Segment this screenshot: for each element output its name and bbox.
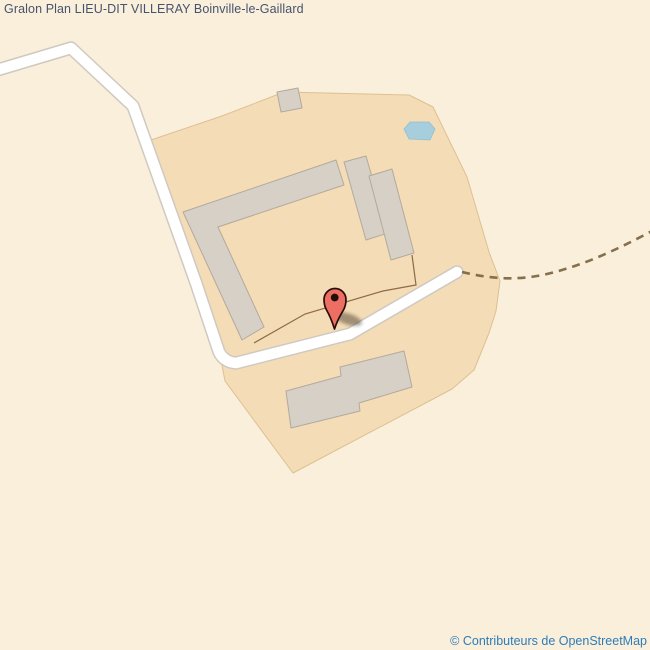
map-viewport: Gralon Plan LIEU-DIT VILLERAY Boinville-… [0,0,650,650]
map-canvas[interactable] [0,0,650,650]
marker-dot [331,294,339,302]
building-small-shed [277,88,302,112]
attribution: © Contributeurs de OpenStreetMap [450,634,647,648]
page-title: Gralon Plan LIEU-DIT VILLERAY Boinville-… [4,2,304,16]
attribution-link[interactable]: © Contributeurs de OpenStreetMap [450,634,647,648]
pond [404,122,435,140]
